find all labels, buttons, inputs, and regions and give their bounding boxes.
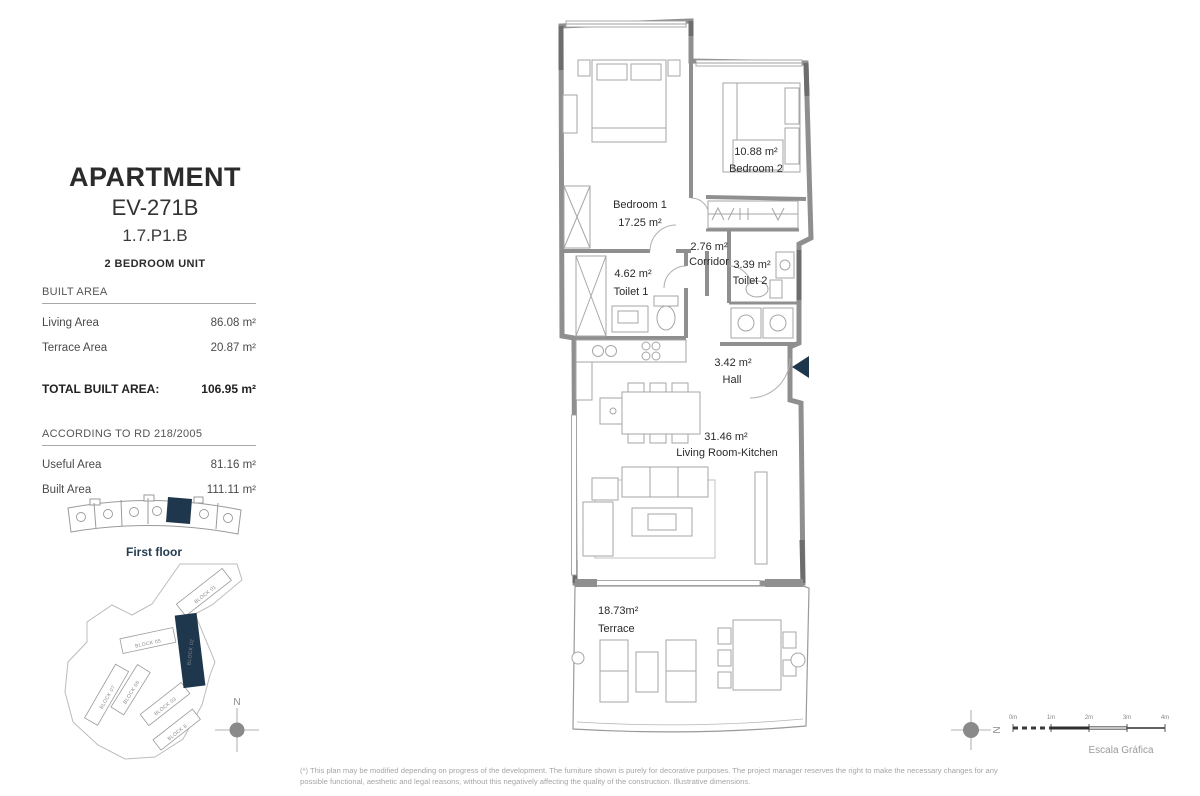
window-living: [572, 415, 577, 575]
room-label-terrace-name: Terrace: [598, 623, 635, 635]
title-block: APARTMENT EV-271B 1.7.P1.B 2 BEDROOM UNI…: [38, 162, 272, 270]
terrace-chair: [718, 628, 731, 644]
room-label-hall-name: Hall: [723, 374, 742, 386]
row-value: 86.08 m²: [211, 317, 256, 329]
row-label: Terrace Area: [42, 342, 107, 354]
scale-tick: 3m: [1123, 715, 1131, 721]
compass-circle: [230, 723, 245, 738]
room-label-corridor-name: Corridor: [689, 256, 729, 268]
unit-reference: 1.7.P1.B: [38, 226, 272, 246]
built-area-header: BUILT AREA: [42, 286, 256, 304]
wc-toilet1: [657, 306, 675, 330]
compass-circle: [963, 722, 979, 738]
table-row: Useful Area 81.16 m²: [42, 459, 256, 471]
room-label-toilet2-name: Toilet 2: [733, 275, 768, 287]
row-value: 20.87 m²: [211, 342, 256, 354]
wc-tank: [654, 296, 678, 306]
dresser: [563, 95, 577, 133]
hob-burner: [642, 342, 650, 350]
room-label-hall-area: 3.42 m²: [714, 357, 752, 369]
nightstand: [668, 60, 680, 76]
total-value: 106.95 m²: [201, 382, 256, 396]
kitchen-tall-unit: [576, 362, 592, 400]
area-table: BUILT AREA Living Area 86.08 m² Terrace …: [42, 286, 256, 496]
unit-type: 2 BEDROOM UNIT: [38, 258, 272, 270]
row-value: 81.16 m²: [211, 459, 256, 471]
scale-bar-label: Escala Gráfica: [1088, 745, 1153, 756]
north-compass-rotated: N: [951, 710, 1001, 750]
strip-notch: [144, 495, 154, 501]
floor-label: First floor: [126, 545, 182, 559]
scale-tick: 4m: [1161, 715, 1169, 721]
floor-plan: Bedroom 1 17.25 m² 10.88 m² Bedroom 2 2.…: [540, 12, 840, 742]
room-label-bedroom2-area: 10.88 m²: [734, 146, 778, 158]
terrace-fixture: [572, 652, 584, 664]
dining-table: [622, 392, 700, 434]
north-compass: N: [215, 697, 259, 752]
room-label-living-name: Living Room-Kitchen: [676, 447, 778, 459]
plan-sheet: { "colors": { "accent": "#1e374d", "wall…: [0, 0, 1200, 796]
tv-unit: [755, 472, 767, 564]
total-built-area-row: TOTAL BUILT AREA: 106.95 m²: [42, 382, 256, 396]
strip-notch: [194, 497, 203, 503]
terrace-fixture: [791, 653, 805, 667]
room-label-bedroom2-name: Bedroom 2: [729, 163, 783, 175]
table-row: Living Area 86.08 m²: [42, 317, 256, 329]
scale-tick: 0m: [1009, 715, 1017, 721]
scale-tick: 1m: [1047, 715, 1055, 721]
graphic-scale: 0m 1m 2m 3m 4m Escala Gráfica: [1009, 715, 1169, 756]
scale-tick: 2m: [1085, 715, 1093, 721]
room-label-bedroom1-name: Bedroom 1: [613, 199, 667, 211]
entrance-arrow-icon: [792, 356, 809, 378]
room-label-corridor-area: 2.76 m²: [690, 241, 728, 253]
wall-pier: [765, 579, 803, 587]
nightstand: [578, 60, 590, 76]
sofa: [622, 467, 708, 497]
terrace-dining-table: [733, 620, 781, 690]
room-label-toilet1-area: 4.62 m²: [614, 268, 652, 280]
room-label-bedroom1-area: 17.25 m²: [618, 217, 662, 229]
room-label-living-area: 31.46 m²: [704, 431, 748, 443]
armchair: [592, 478, 618, 500]
key-plan-strip: First floor: [62, 486, 247, 564]
dining-chair: [628, 383, 644, 392]
disclaimer-footnote: (*) This plan may be modified depending …: [300, 765, 1168, 787]
rd-area-header: ACCORDING TO RD 218/2005: [42, 428, 256, 446]
strip-notch: [90, 499, 100, 505]
north-label: N: [990, 726, 1001, 733]
highlighted-unit: [166, 497, 192, 524]
scale-bar-group: N 0m 1m 2m 3m 4m Escala Gráfica: [943, 698, 1178, 760]
row-label: Useful Area: [42, 459, 101, 471]
wc-tank: [770, 280, 782, 298]
page-title: APARTMENT: [38, 162, 272, 193]
chaise: [583, 502, 613, 556]
row-label: Living Area: [42, 317, 99, 329]
disclaimer-line-2: possible functional, aesthetic and legal…: [300, 776, 1168, 787]
sliding-door-terrace: [590, 581, 760, 586]
site-plan: BLOCK 01 BLOCK 05 BLOCK 02 BLOCK 06 BLOC…: [55, 562, 270, 767]
disclaimer-line-1: (*) This plan may be modified depending …: [300, 765, 1168, 776]
wall-pier: [575, 579, 597, 587]
room-label-toilet2-area: 3.39 m²: [733, 259, 771, 271]
total-label: TOTAL BUILT AREA:: [42, 382, 159, 396]
north-label: N: [233, 697, 240, 708]
table-row: Terrace Area 20.87 m²: [42, 342, 256, 354]
room-label-terrace-area: 18.73m²: [598, 605, 639, 617]
kitchen-sink: [593, 346, 604, 357]
unit-code: EV-271B: [38, 195, 272, 221]
room-label-toilet1-name: Toilet 1: [614, 286, 649, 298]
terrace-side-table: [636, 652, 658, 692]
